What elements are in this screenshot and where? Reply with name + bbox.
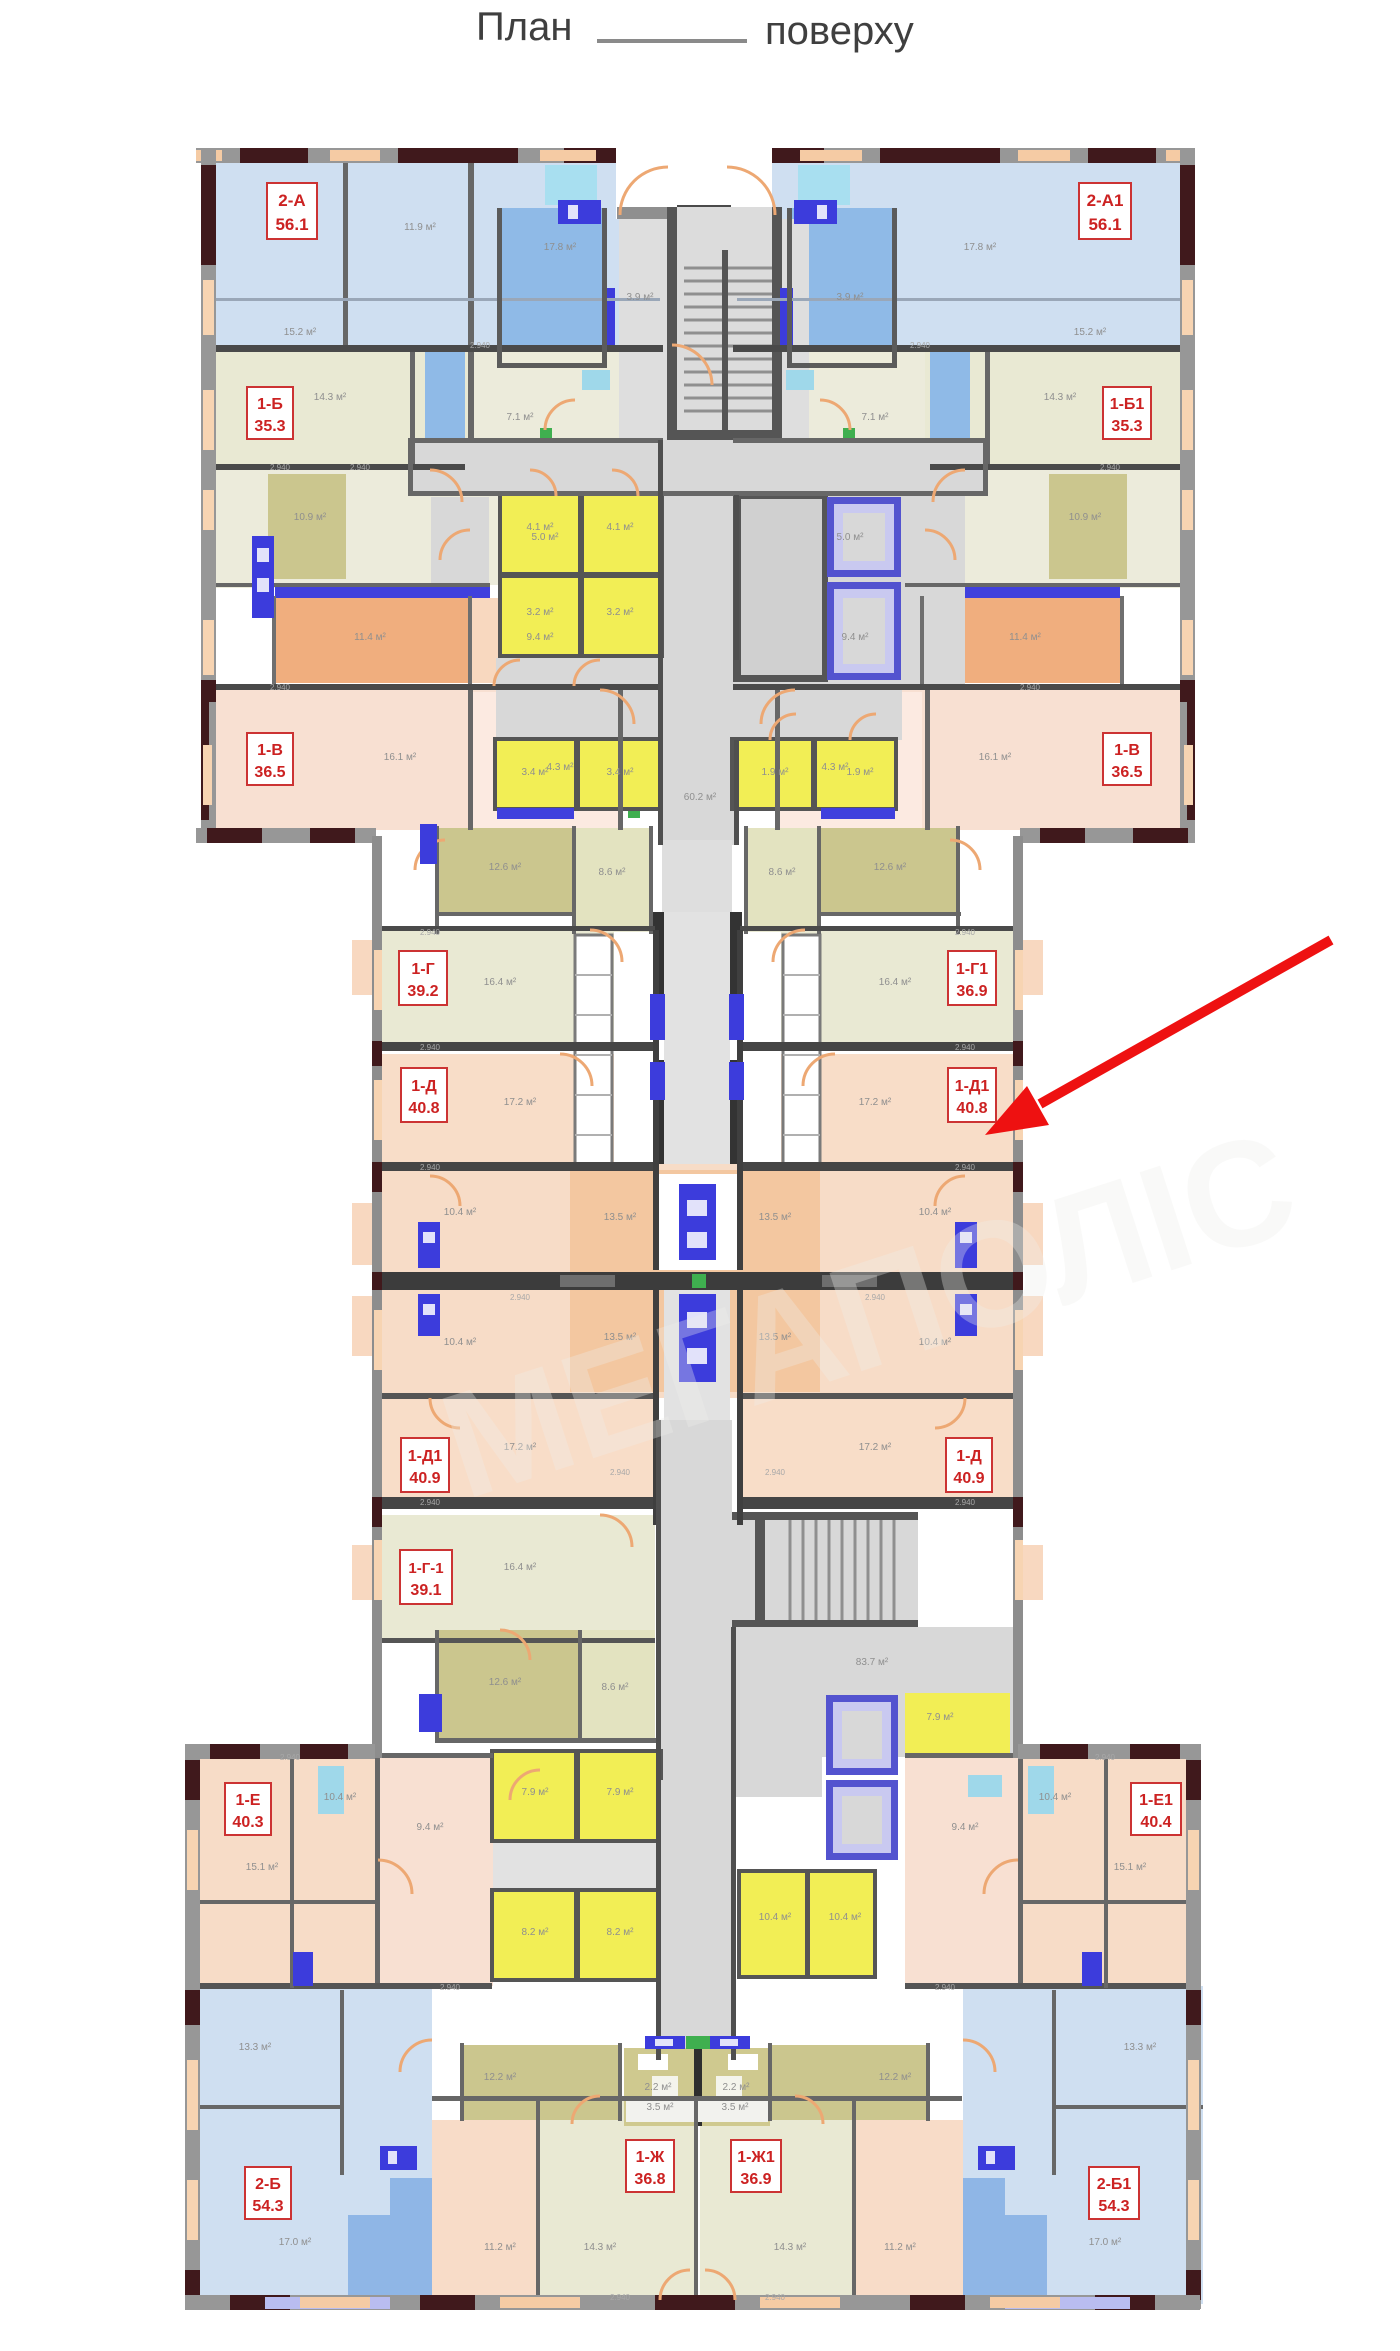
svg-text:3.2 м²: 3.2 м² — [527, 607, 555, 618]
svg-text:2-Б1: 2-Б1 — [1097, 2176, 1132, 2193]
svg-text:2-А1: 2-А1 — [1087, 191, 1124, 210]
svg-text:1-В: 1-В — [257, 742, 283, 759]
svg-text:План: План — [476, 5, 572, 49]
svg-text:2.940: 2.940 — [1095, 1753, 1116, 1762]
svg-text:1-Ж1: 1-Ж1 — [737, 2149, 775, 2166]
svg-text:60.2 м²: 60.2 м² — [684, 792, 717, 803]
svg-text:14.3 м²: 14.3 м² — [1044, 392, 1077, 403]
svg-text:10.4 м²: 10.4 м² — [444, 1207, 477, 1218]
svg-text:1-Г: 1-Г — [411, 961, 434, 978]
svg-text:2.940: 2.940 — [955, 1163, 976, 1172]
svg-text:3.9 м²: 3.9 м² — [627, 292, 655, 303]
svg-text:7.9 м²: 7.9 м² — [607, 1787, 635, 1798]
svg-text:4.1 м²: 4.1 м² — [607, 522, 635, 533]
svg-text:15.2 м²: 15.2 м² — [284, 327, 317, 338]
svg-text:36.8: 36.8 — [634, 2171, 665, 2188]
svg-text:1.9 м²: 1.9 м² — [762, 767, 790, 778]
svg-text:7.1 м²: 7.1 м² — [862, 412, 890, 423]
svg-text:2.940: 2.940 — [440, 1983, 461, 1992]
svg-text:40.9: 40.9 — [953, 1470, 984, 1487]
svg-text:2.940: 2.940 — [935, 1983, 956, 1992]
svg-text:2.940: 2.940 — [765, 1468, 786, 1477]
svg-text:1-Г-1: 1-Г-1 — [408, 1560, 443, 1577]
svg-text:2.940: 2.940 — [270, 463, 291, 472]
svg-text:поверху: поверху — [765, 9, 914, 53]
svg-text:14.3 м²: 14.3 м² — [314, 392, 347, 403]
svg-text:2.940: 2.940 — [955, 1043, 976, 1052]
svg-text:4.1 м²: 4.1 м² — [527, 522, 555, 533]
svg-text:5.0 м²: 5.0 м² — [837, 532, 865, 543]
svg-text:10.9 м²: 10.9 м² — [294, 512, 327, 523]
svg-text:10.4 м²: 10.4 м² — [1039, 1792, 1072, 1803]
svg-text:15.2 м²: 15.2 м² — [1074, 327, 1107, 338]
svg-text:10.9 м²: 10.9 м² — [1069, 512, 1102, 523]
svg-text:2.940: 2.940 — [420, 1498, 441, 1507]
svg-text:3.5 м²: 3.5 м² — [722, 2102, 750, 2113]
svg-text:8.6 м²: 8.6 м² — [599, 867, 627, 878]
svg-text:17.8 м²: 17.8 м² — [544, 242, 577, 253]
svg-text:17.2 м²: 17.2 м² — [859, 1442, 892, 1453]
svg-text:2.940: 2.940 — [765, 2293, 786, 2302]
svg-text:35.3: 35.3 — [1111, 418, 1142, 435]
svg-text:2.2 м²: 2.2 м² — [645, 2082, 673, 2093]
svg-text:12.2 м²: 12.2 м² — [484, 2072, 517, 2083]
svg-text:8.6 м²: 8.6 м² — [602, 1682, 630, 1693]
svg-text:16.1 м²: 16.1 м² — [384, 752, 417, 763]
svg-text:12.6 м²: 12.6 м² — [489, 862, 522, 873]
svg-text:8.6 м²: 8.6 м² — [769, 867, 797, 878]
svg-text:2.2 м²: 2.2 м² — [723, 2082, 751, 2093]
svg-text:16.4 м²: 16.4 м² — [484, 977, 517, 988]
svg-text:1-В: 1-В — [1114, 742, 1140, 759]
svg-text:11.2 м²: 11.2 м² — [884, 2242, 916, 2253]
svg-text:56.1: 56.1 — [1088, 215, 1121, 234]
svg-text:1.9 м²: 1.9 м² — [847, 767, 875, 778]
svg-text:2.940: 2.940 — [1100, 463, 1121, 472]
svg-text:54.3: 54.3 — [1098, 2198, 1129, 2215]
svg-text:83.7 м²: 83.7 м² — [856, 1657, 889, 1668]
svg-text:3.5 м²: 3.5 м² — [647, 2102, 675, 2113]
svg-text:39.1: 39.1 — [410, 1582, 441, 1599]
svg-text:17.8 м²: 17.8 м² — [964, 242, 997, 253]
svg-text:11.4 м²: 11.4 м² — [1009, 632, 1041, 643]
svg-text:1-Е: 1-Е — [236, 1792, 261, 1809]
svg-text:2.940: 2.940 — [470, 341, 491, 350]
svg-text:36.9: 36.9 — [956, 983, 987, 1000]
svg-text:1-Д: 1-Д — [956, 1448, 982, 1465]
svg-text:4.3 м²: 4.3 м² — [547, 762, 575, 773]
svg-text:40.9: 40.9 — [409, 1470, 440, 1487]
svg-text:36.5: 36.5 — [1111, 764, 1142, 781]
svg-text:1-Б1: 1-Б1 — [1110, 396, 1145, 413]
svg-text:16.4 м²: 16.4 м² — [504, 1562, 537, 1573]
svg-text:2.940: 2.940 — [420, 1163, 441, 1172]
svg-text:13.5 м²: 13.5 м² — [759, 1212, 792, 1223]
svg-text:2.940: 2.940 — [420, 1043, 441, 1052]
svg-text:40.8: 40.8 — [408, 1100, 439, 1117]
svg-text:10.4 м²: 10.4 м² — [829, 1912, 862, 1923]
svg-text:2-А: 2-А — [278, 191, 305, 210]
svg-text:3.9 м²: 3.9 м² — [837, 292, 865, 303]
svg-text:2.940: 2.940 — [955, 928, 976, 937]
svg-text:7.9 м²: 7.9 м² — [927, 1712, 955, 1723]
svg-text:17.0 м²: 17.0 м² — [279, 2237, 312, 2248]
svg-text:16.1 м²: 16.1 м² — [979, 752, 1012, 763]
svg-text:17.0 м²: 17.0 м² — [1089, 2237, 1122, 2248]
svg-text:2.940: 2.940 — [1020, 683, 1041, 692]
svg-text:8.2 м²: 8.2 м² — [607, 1927, 635, 1938]
svg-text:13.3 м²: 13.3 м² — [1124, 2042, 1157, 2053]
svg-text:11.2 м²: 11.2 м² — [484, 2242, 516, 2253]
svg-text:7.9 м²: 7.9 м² — [522, 1787, 550, 1798]
svg-text:14.3 м²: 14.3 м² — [584, 2242, 617, 2253]
svg-text:1-Д1: 1-Д1 — [955, 1078, 990, 1095]
svg-text:15.1 м²: 15.1 м² — [246, 1862, 279, 1873]
svg-text:10.4 м²: 10.4 м² — [324, 1792, 357, 1803]
svg-text:1-Г1: 1-Г1 — [956, 961, 988, 978]
svg-text:12.2 м²: 12.2 м² — [879, 2072, 912, 2083]
svg-text:3.4 м²: 3.4 м² — [607, 767, 635, 778]
svg-text:5.0 м²: 5.0 м² — [532, 532, 560, 543]
svg-text:1-Ж: 1-Ж — [636, 2149, 665, 2166]
svg-text:40.8: 40.8 — [956, 1100, 987, 1117]
svg-text:1-Д: 1-Д — [411, 1078, 437, 1095]
svg-text:16.4 м²: 16.4 м² — [879, 977, 912, 988]
svg-text:2.940: 2.940 — [270, 683, 291, 692]
svg-text:2.940: 2.940 — [510, 1293, 531, 1302]
svg-text:2.940: 2.940 — [350, 463, 371, 472]
svg-text:11.4 м²: 11.4 м² — [354, 632, 386, 643]
svg-text:12.6 м²: 12.6 м² — [874, 862, 907, 873]
svg-text:2.940: 2.940 — [420, 928, 441, 937]
svg-text:36.5: 36.5 — [254, 764, 285, 781]
svg-text:54.3: 54.3 — [252, 2198, 283, 2215]
svg-text:2.940: 2.940 — [910, 341, 931, 350]
svg-text:14.3 м²: 14.3 м² — [774, 2242, 807, 2253]
svg-text:9.4 м²: 9.4 м² — [842, 632, 870, 643]
svg-text:13.3 м²: 13.3 м² — [239, 2042, 272, 2053]
svg-text:3.4 м²: 3.4 м² — [522, 767, 550, 778]
svg-text:13.5 м²: 13.5 м² — [604, 1212, 637, 1223]
svg-text:1-Д1: 1-Д1 — [408, 1448, 443, 1465]
svg-text:2.940: 2.940 — [955, 1498, 976, 1507]
svg-text:40.3: 40.3 — [232, 1814, 263, 1831]
svg-text:40.4: 40.4 — [1140, 1814, 1171, 1831]
svg-text:1-Е1: 1-Е1 — [1139, 1792, 1173, 1809]
svg-text:12.6 м²: 12.6 м² — [489, 1677, 522, 1688]
svg-text:39.2: 39.2 — [407, 983, 438, 1000]
svg-text:2.940: 2.940 — [280, 1753, 301, 1762]
svg-text:10.4 м²: 10.4 м² — [444, 1337, 477, 1348]
svg-text:17.2 м²: 17.2 м² — [504, 1097, 537, 1108]
svg-text:36.9: 36.9 — [740, 2171, 771, 2188]
svg-text:17.2 м²: 17.2 м² — [859, 1097, 892, 1108]
svg-text:9.4 м²: 9.4 м² — [417, 1822, 445, 1833]
svg-text:7.1 м²: 7.1 м² — [507, 412, 535, 423]
svg-text:9.4 м²: 9.4 м² — [952, 1822, 980, 1833]
svg-text:11.9 м²: 11.9 м² — [404, 222, 436, 233]
svg-text:2-Б: 2-Б — [255, 2176, 281, 2193]
svg-text:15.1 м²: 15.1 м² — [1114, 1862, 1147, 1873]
svg-text:8.2 м²: 8.2 м² — [522, 1927, 550, 1938]
svg-text:2.940: 2.940 — [610, 2293, 631, 2302]
svg-text:35.3: 35.3 — [254, 418, 285, 435]
svg-text:1-Б: 1-Б — [257, 396, 283, 413]
svg-text:9.4 м²: 9.4 м² — [527, 632, 555, 643]
svg-text:10.4 м²: 10.4 м² — [759, 1912, 792, 1923]
svg-text:3.2 м²: 3.2 м² — [607, 607, 635, 618]
svg-text:56.1: 56.1 — [275, 215, 308, 234]
svg-text:4.3 м²: 4.3 м² — [822, 762, 850, 773]
